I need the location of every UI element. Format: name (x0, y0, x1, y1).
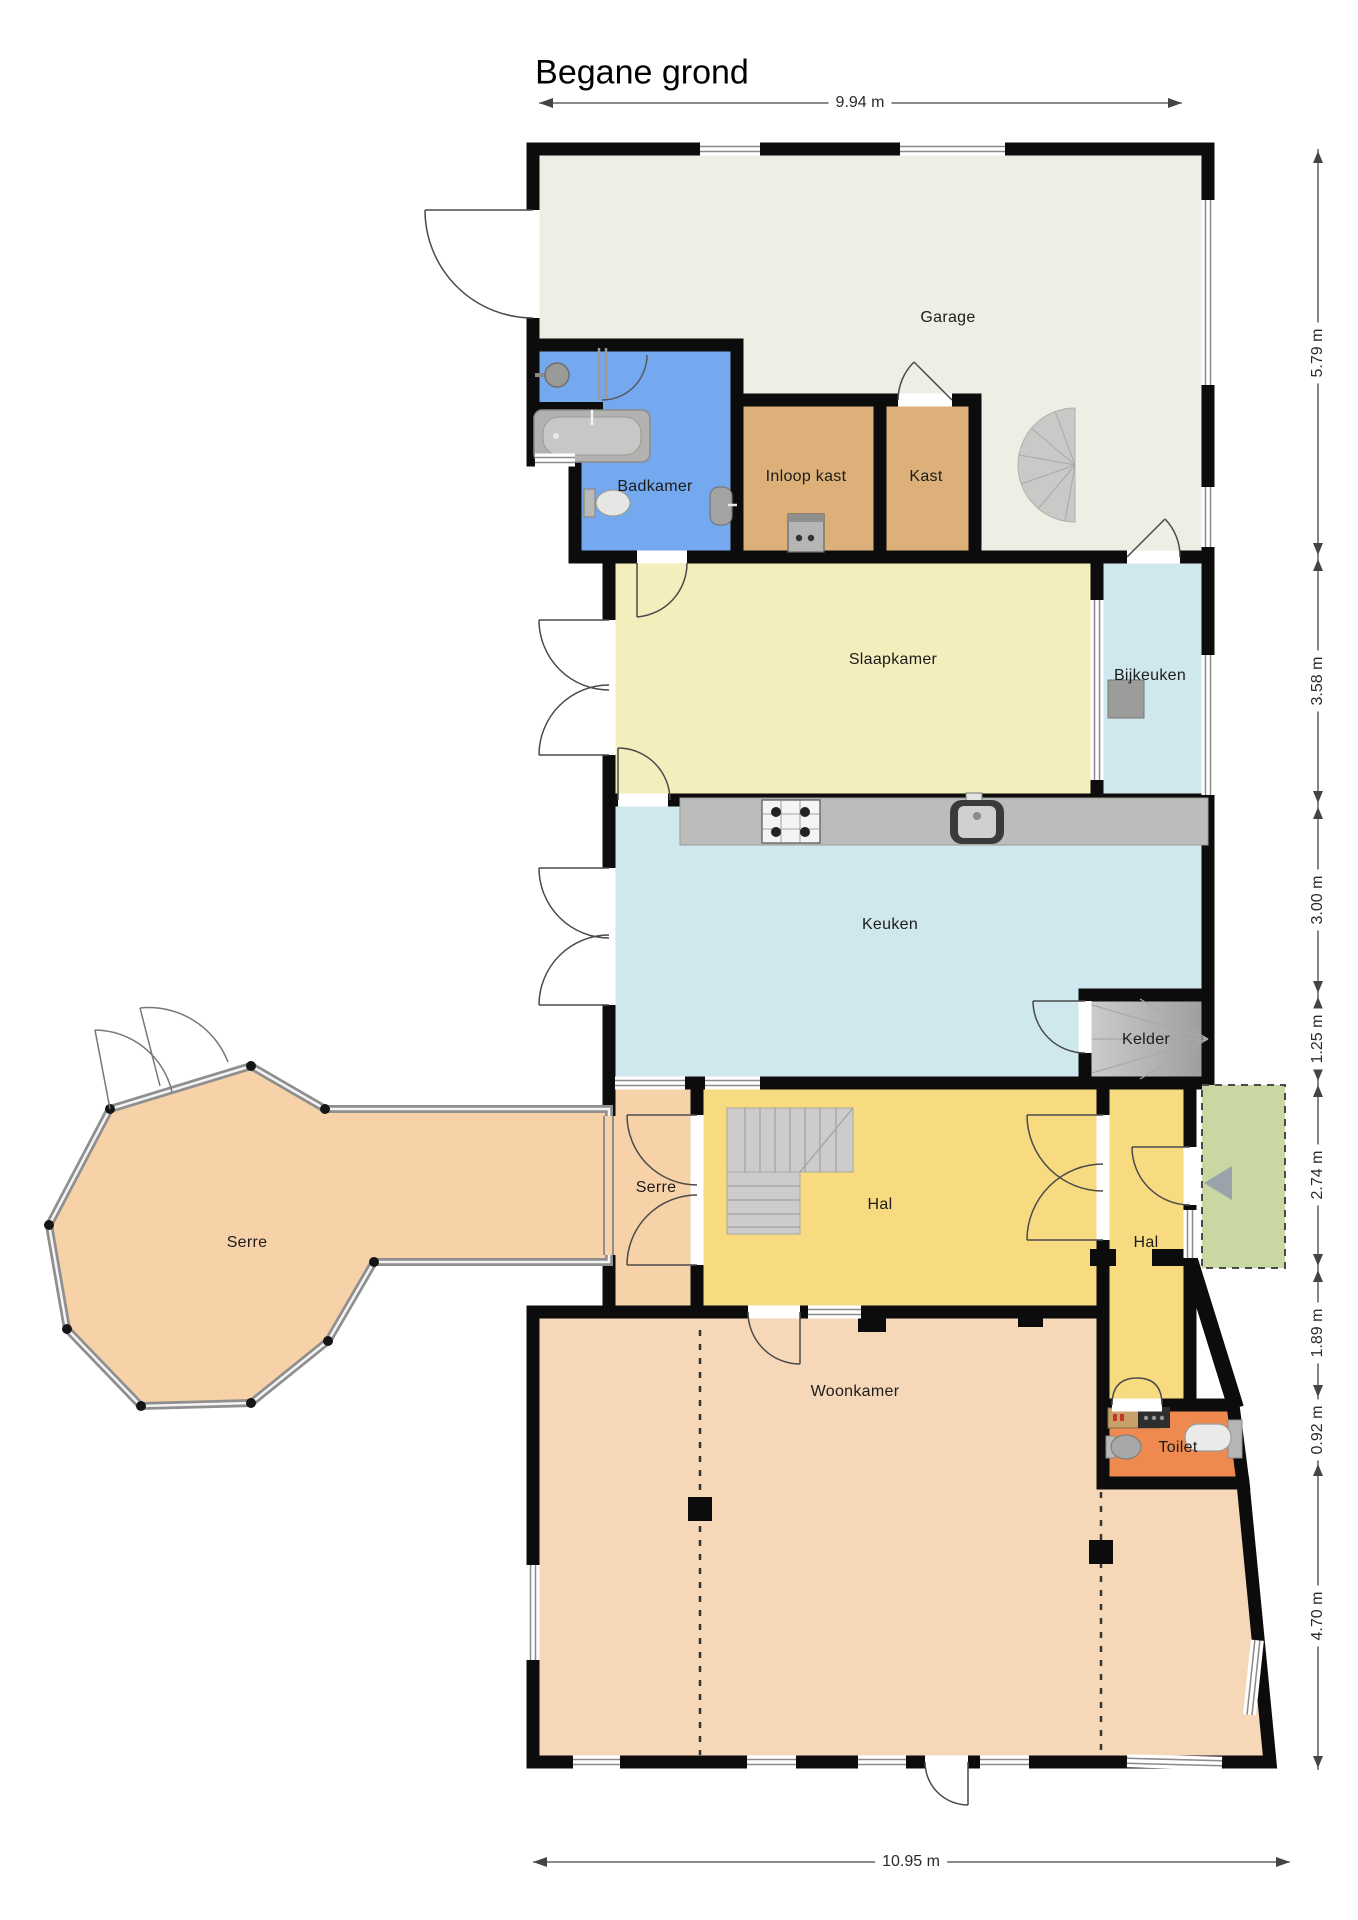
slanted-wall (1190, 1260, 1236, 1408)
room-serre-vestibule (609, 1083, 697, 1312)
room-label-woonkamer: Woonkamer (811, 1383, 900, 1401)
toilet-icon (1106, 1435, 1141, 1459)
room-label-keuken: Keuken (862, 916, 918, 934)
door-icon (425, 210, 540, 318)
floorplan-page: Begane grond 9.94 m 10.95 m 5.79 m 3.58 … (0, 0, 1358, 1920)
room-label-serre-large: Serre (227, 1234, 268, 1252)
window-icon (900, 143, 1005, 156)
page-title: Begane grond (535, 54, 749, 93)
dimension-label-right-7: 4.70 m (1309, 1586, 1327, 1647)
serre-door-arc-icon (140, 1008, 228, 1062)
room-label-bijkeuken: Bijkeuken (1114, 667, 1186, 685)
window-icon (1202, 655, 1215, 795)
room-label-hal-side: Hal (1134, 1234, 1159, 1252)
room-label-hal-main: Hal (868, 1196, 893, 1214)
french-door-icon (539, 620, 616, 755)
window-icon (1202, 487, 1215, 547)
window-icon (980, 1756, 1029, 1769)
wall-stub (1090, 1249, 1116, 1266)
entrance-porch (1202, 1085, 1285, 1268)
room-label-garage: Garage (920, 309, 975, 327)
dimension-label-right-5: 1.89 m (1309, 1303, 1327, 1364)
window-icon (858, 1756, 906, 1769)
dimension-label-top: 9.94 m (829, 94, 892, 112)
french-door-icon (539, 868, 616, 1005)
room-label-inloop-kast: Inloop kast (766, 468, 847, 486)
window-icon (527, 1565, 540, 1660)
washing-machine-icon (788, 514, 824, 552)
room-label-slaapkamer: Slaapkamer (849, 651, 937, 669)
dimension-label-right-6: 0.92 m (1309, 1400, 1327, 1461)
floorplan-graphic (0, 0, 1358, 1920)
window-icon (535, 454, 575, 467)
dimension-label-right-3: 1.25 m (1309, 1009, 1327, 1070)
window-icon (700, 143, 760, 156)
serre-door-arc-icon (95, 1030, 172, 1092)
window-icon (705, 1077, 760, 1090)
kitchen-counter (680, 793, 1208, 845)
door-icon (925, 1756, 968, 1806)
dimension-label-bottom: 10.95 m (875, 1853, 947, 1871)
room-label-kast: Kast (909, 468, 942, 486)
window-icon (1127, 1754, 1222, 1769)
room-label-serre-small: Serre (636, 1179, 677, 1197)
window-icon (573, 1756, 620, 1769)
dimension-label-right-4: 2.74 m (1309, 1145, 1327, 1206)
dimension-label-right-1: 3.58 m (1309, 651, 1327, 712)
window-icon (1091, 600, 1104, 780)
window-icon (615, 1077, 685, 1090)
window-icon (747, 1756, 796, 1769)
window-icon (1184, 1210, 1197, 1258)
stove-icon (762, 800, 820, 843)
dimension-label-right-2: 3.00 m (1309, 870, 1327, 931)
room-label-toilet: Toilet (1158, 1439, 1197, 1457)
window-icon (808, 1306, 861, 1319)
room-label-kelder: Kelder (1122, 1031, 1170, 1049)
dimension-label-right-0: 5.79 m (1309, 323, 1327, 384)
window-icon (1202, 200, 1215, 385)
room-label-badkamer: Badkamer (617, 478, 692, 496)
room-slaapkamer (609, 557, 1097, 800)
appliance-icon (1108, 680, 1144, 718)
